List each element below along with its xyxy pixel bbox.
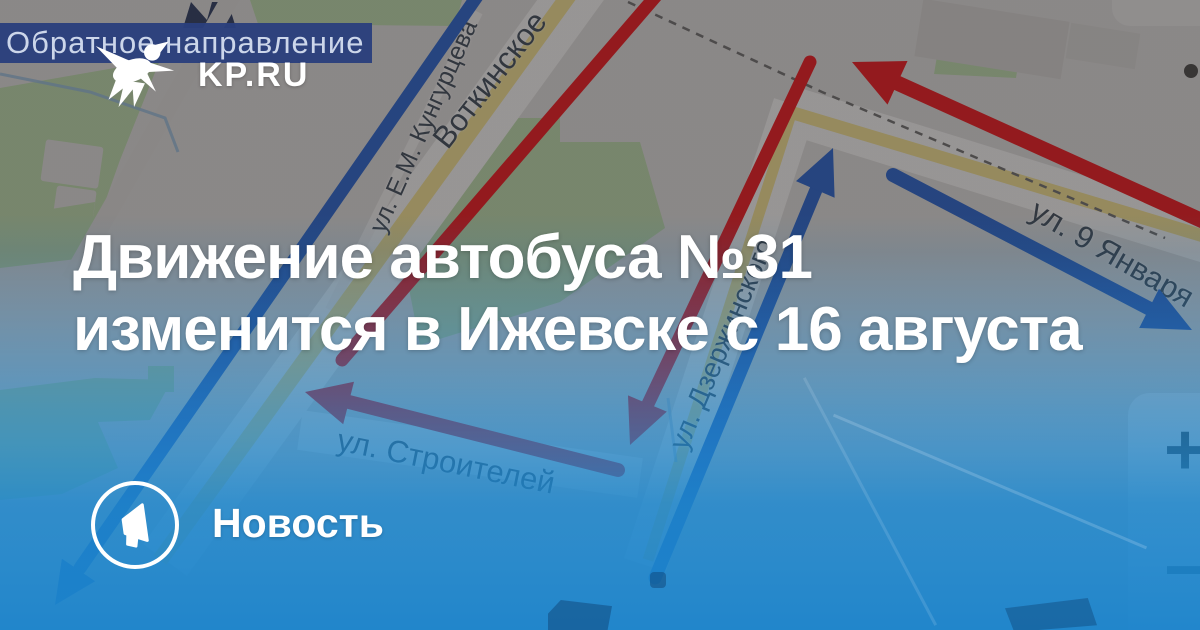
site-logo-text[interactable]: KP.RU	[198, 56, 309, 95]
og-news-card: ул. Е.М. Кунгурцева Воткинское ул. Дзерж…	[0, 0, 1200, 630]
headline-line1: Движение автобуса №31	[73, 222, 1082, 294]
map-green-area-small	[148, 366, 174, 392]
map-yellow-road-yanvarya	[790, 112, 1200, 238]
news-badge-label: Новость	[212, 500, 384, 547]
map-building-silhouette	[548, 600, 612, 630]
map-road-yanvarya	[790, 110, 1200, 240]
megaphone-icon	[111, 501, 159, 549]
map-park-inner-lot	[53, 185, 97, 218]
map-faint-path	[833, 414, 1147, 550]
map-building	[1066, 23, 1141, 70]
zoom-in-button[interactable]: +	[1164, 414, 1200, 486]
headline-line2: изменится в Ижевске с 16 августа	[73, 294, 1082, 366]
kp-swallow-icon	[88, 36, 180, 118]
street-label-stroiteley: ул. Строителей	[327, 421, 565, 503]
map-park-inner-lot	[40, 139, 103, 189]
legend-banner: Обратное направление	[0, 23, 372, 63]
map-panel-topright	[1112, 0, 1200, 26]
map-boundary-dashed	[628, 2, 1165, 238]
map-building	[914, 0, 1069, 79]
map-building-silhouette	[1005, 598, 1097, 630]
map-green-area-topright	[934, 50, 1020, 78]
zoom-out-button[interactable]: −	[1164, 534, 1200, 606]
map-faint-path	[803, 377, 937, 626]
map-building-silhouette	[650, 572, 666, 588]
map-dot	[1184, 64, 1198, 78]
legend-banner-text: Обратное направление	[0, 25, 364, 61]
news-badge-circle	[91, 481, 179, 569]
route-arrow-red-yanvarya	[852, 61, 1200, 222]
headline: Движение автобуса №31 изменится в Ижевск…	[73, 222, 1082, 366]
